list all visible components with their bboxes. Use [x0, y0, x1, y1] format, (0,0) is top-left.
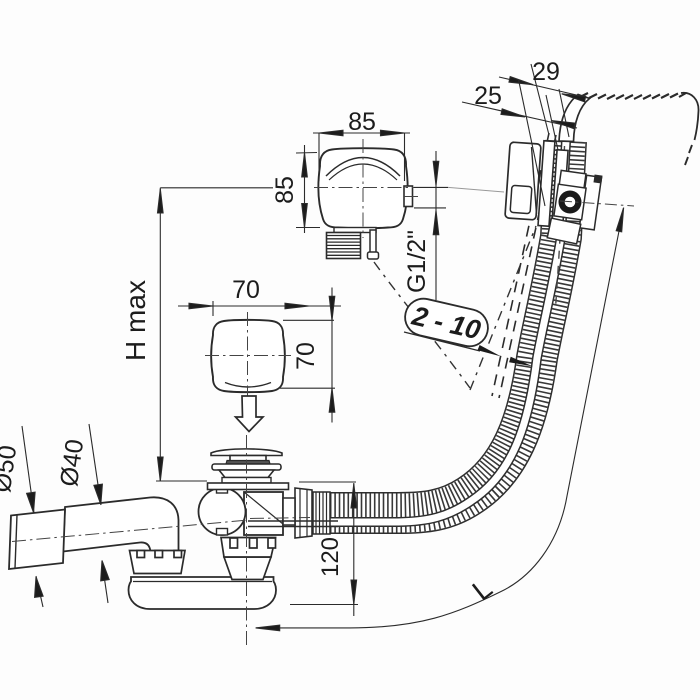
svg-text:H max: H max: [120, 280, 151, 361]
svg-text:29: 29: [532, 58, 560, 86]
svg-text:G1/2": G1/2": [403, 230, 431, 293]
svg-text:25: 25: [474, 82, 502, 110]
svg-text:120: 120: [317, 537, 344, 577]
svg-text:85: 85: [271, 176, 299, 204]
svg-text:70: 70: [292, 342, 320, 370]
svg-text:70: 70: [232, 276, 260, 304]
svg-text:85: 85: [348, 108, 376, 136]
